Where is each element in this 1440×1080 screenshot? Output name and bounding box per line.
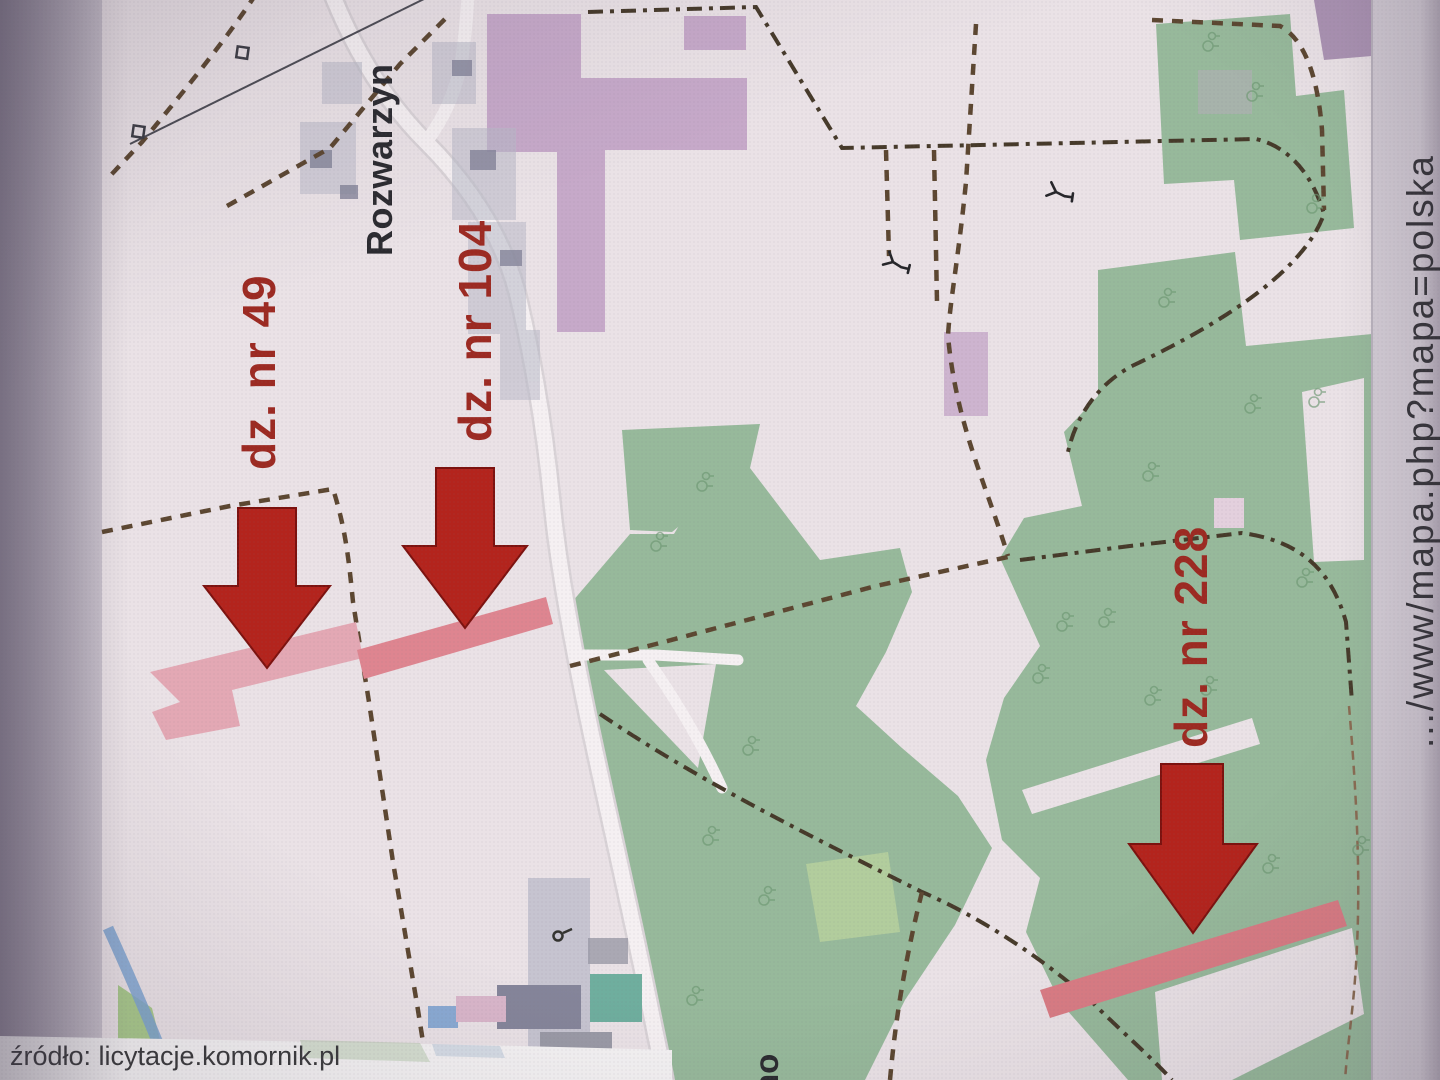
- pond: [590, 974, 642, 1022]
- photographed-cadastral-map: dz. nr 49 dz. nr 104 dz. nr 228 Rozwarzy…: [0, 0, 1440, 1080]
- map-image: [0, 0, 1440, 1080]
- margin-url-text: .../www/mapa.php?mapa=polska: [1402, 154, 1439, 748]
- village-label: Rozwarzyn: [362, 63, 398, 256]
- parcel-49-label: dz. nr 49: [236, 274, 282, 470]
- page-left-edge: [0, 0, 102, 1080]
- source-caption: źródło: licytacje.komornik.pl: [10, 1041, 340, 1072]
- parcel-104-label: dz. nr 104: [452, 220, 498, 442]
- meadow-patch: [806, 852, 900, 942]
- village-label-partial: no: [750, 1054, 783, 1080]
- parcel-228-label: dz. nr 228: [1168, 526, 1214, 748]
- print-bleed: [432, 1044, 505, 1058]
